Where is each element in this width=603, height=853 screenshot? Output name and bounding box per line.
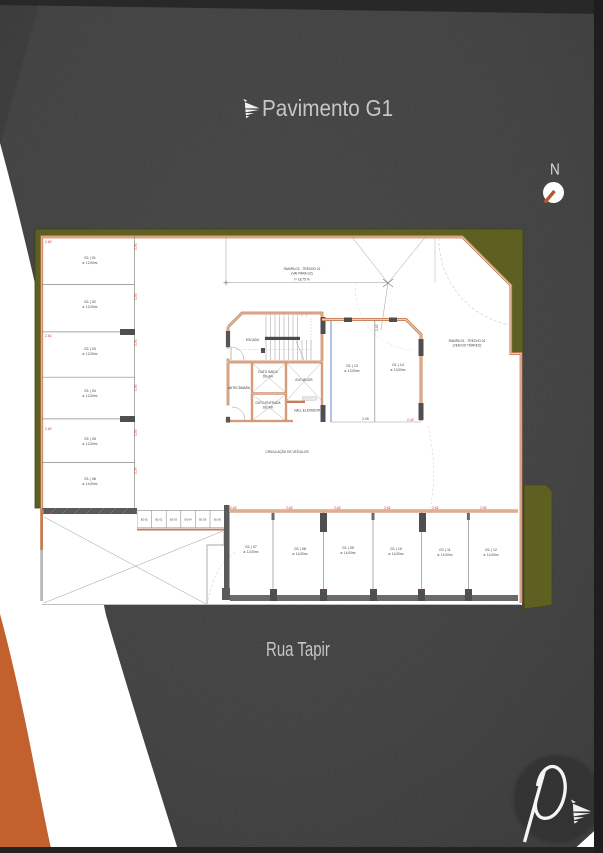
svg-text:(VAI PARA G2): (VAI PARA G2) bbox=[291, 272, 312, 276]
svg-text:G1 | 05: G1 | 05 bbox=[84, 437, 96, 441]
svg-text:2,43: 2,43 bbox=[407, 418, 414, 422]
svg-text:2,62: 2,62 bbox=[384, 506, 391, 510]
svg-text:2,62: 2,62 bbox=[134, 429, 138, 436]
svg-text:a: 12,00m²: a: 12,00m² bbox=[82, 305, 97, 309]
svg-text:B1-05: B1-05 bbox=[199, 518, 206, 522]
svg-text:a: 14,00m²: a: 14,00m² bbox=[82, 482, 97, 486]
svg-text:2,50: 2,50 bbox=[134, 467, 138, 474]
svg-text:2,62: 2,62 bbox=[375, 324, 379, 331]
svg-text:2,62: 2,62 bbox=[45, 334, 52, 338]
svg-text:(VEM DO TÉRREO): (VEM DO TÉRREO) bbox=[453, 343, 482, 348]
svg-text:G1 | 12: G1 | 12 bbox=[485, 548, 497, 552]
svg-text:G1 | 03: G1 | 03 bbox=[84, 347, 96, 351]
svg-text:a: 12,00m²: a: 12,00m² bbox=[344, 369, 359, 373]
svg-text:G1 | 07: G1 | 07 bbox=[245, 545, 257, 549]
svg-text:CIRCULAÇÃO DE VEÍCULOS: CIRCULAÇÃO DE VEÍCULOS bbox=[265, 449, 308, 454]
svg-text:G1 | 04: G1 | 04 bbox=[84, 389, 96, 393]
svg-text:G1 | 06: G1 | 06 bbox=[84, 477, 96, 481]
svg-text:B1-04: B1-04 bbox=[185, 518, 192, 522]
svg-text:ANTECÂMARA: ANTECÂMARA bbox=[228, 386, 251, 390]
svg-text:DUTO ENTRADA: DUTO ENTRADA bbox=[255, 401, 281, 405]
svg-text:a: 13,00m²: a: 13,00m² bbox=[390, 368, 405, 372]
svg-text:G1 | 08: G1 | 08 bbox=[294, 547, 306, 551]
svg-text:a: 14,00m²: a: 14,00m² bbox=[340, 551, 355, 555]
svg-text:B1-03: B1-03 bbox=[170, 518, 177, 522]
svg-text:2,62: 2,62 bbox=[286, 506, 293, 510]
svg-text:RAMPA G2 - TRECHO 01: RAMPA G2 - TRECHO 01 bbox=[284, 267, 321, 271]
svg-text:2,62: 2,62 bbox=[45, 427, 52, 431]
svg-text:3,08: 3,08 bbox=[362, 417, 369, 421]
svg-text:G1 | 02: G1 | 02 bbox=[84, 300, 96, 304]
svg-text:2,62: 2,62 bbox=[134, 339, 138, 346]
svg-text:G1 | 13: G1 | 13 bbox=[346, 364, 358, 368]
svg-text:a: 14,00m²: a: 14,00m² bbox=[388, 552, 403, 556]
svg-text:G1 | 10: G1 | 10 bbox=[390, 547, 402, 551]
svg-text:B1-06: B1-06 bbox=[214, 518, 221, 522]
svg-text:2,62: 2,62 bbox=[432, 506, 439, 510]
svg-text:DE-AR: DE-AR bbox=[263, 406, 274, 410]
svg-text:i= 18,75 %: i= 18,75 % bbox=[294, 278, 309, 282]
svg-text:a: 14,00m²: a: 14,00m² bbox=[483, 553, 498, 557]
svg-text:ESCADA: ESCADA bbox=[246, 338, 260, 342]
svg-text:Rua Tapir: Rua Tapir bbox=[266, 638, 330, 661]
svg-text:HALL ELEVADOR: HALL ELEVADOR bbox=[294, 409, 321, 413]
svg-text:G1 | 09: G1 | 09 bbox=[342, 546, 354, 550]
svg-text:DUTO SAÍDA: DUTO SAÍDA bbox=[258, 370, 278, 374]
svg-text:2,62: 2,62 bbox=[134, 293, 138, 300]
svg-text:N: N bbox=[550, 162, 560, 179]
svg-text:2,50: 2,50 bbox=[480, 506, 487, 510]
svg-text:a: 12,00m²: a: 12,00m² bbox=[82, 261, 97, 265]
svg-text:G1 | 11: G1 | 11 bbox=[439, 548, 450, 552]
svg-text:a: 12,00m²: a: 12,00m² bbox=[243, 550, 258, 554]
svg-text:a: 12,00m²: a: 12,00m² bbox=[82, 352, 97, 356]
svg-text:2,62: 2,62 bbox=[230, 506, 237, 510]
svg-text:a: 12,00m²: a: 12,00m² bbox=[82, 442, 97, 446]
svg-text:2,62: 2,62 bbox=[45, 240, 52, 244]
svg-text:B1-01: B1-01 bbox=[141, 518, 148, 522]
svg-text:2,62: 2,62 bbox=[45, 511, 52, 515]
svg-text:RAMPA G1 - TRECHO 02: RAMPA G1 - TRECHO 02 bbox=[449, 339, 486, 343]
svg-text:a: 12,00m²: a: 12,00m² bbox=[82, 394, 97, 398]
svg-text:G1 | 14: G1 | 14 bbox=[392, 363, 404, 367]
svg-text:2,62: 2,62 bbox=[334, 506, 341, 510]
svg-text:a: 14,00m²: a: 14,00m² bbox=[292, 552, 307, 556]
svg-text:a: 14,00m²: a: 14,00m² bbox=[437, 553, 452, 557]
svg-text:G1 | 01: G1 | 01 bbox=[84, 256, 96, 260]
svg-text:B1-02: B1-02 bbox=[155, 518, 162, 522]
svg-text:2,62: 2,62 bbox=[134, 243, 138, 250]
svg-text:2,62: 2,62 bbox=[134, 384, 138, 391]
svg-text:Pavimento G1: Pavimento G1 bbox=[262, 95, 393, 121]
